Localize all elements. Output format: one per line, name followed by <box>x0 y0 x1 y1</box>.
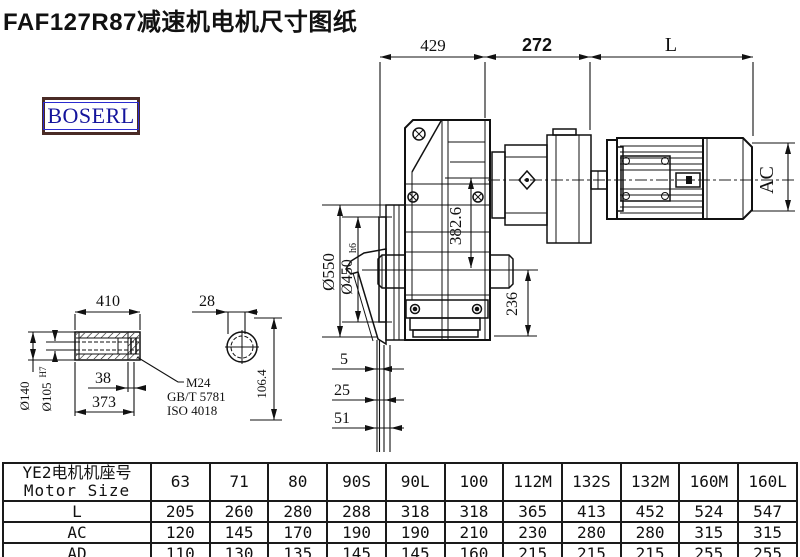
table-cell: 120 <box>151 522 210 543</box>
row-label: L <box>3 501 151 522</box>
table-cell: 210 <box>445 522 504 543</box>
table-cell: 315 <box>679 522 738 543</box>
dim-label-L: L <box>665 34 677 56</box>
table-col-header: 90L <box>386 463 445 501</box>
dim-label-106-4: 106.4 <box>254 369 269 399</box>
table-cell: 170 <box>268 522 327 543</box>
table-cell: 215 <box>621 543 680 557</box>
table-cell: 413 <box>562 501 621 522</box>
standard-label-iso: ISO 4018 <box>167 403 217 418</box>
table-cell: 547 <box>738 501 797 522</box>
dim-label-382-6: 382.6 <box>446 207 465 245</box>
table-col-header: 100 <box>445 463 504 501</box>
table-col-header: 112M <box>503 463 562 501</box>
row-label: AD <box>3 543 151 557</box>
table-cell: 205 <box>151 501 210 522</box>
table-row-AC: AC 120 145 170 190 190 210 230 280 280 3… <box>3 522 797 543</box>
table-col-header: 63 <box>151 463 210 501</box>
table-cell: 452 <box>621 501 680 522</box>
table-cell: 315 <box>738 522 797 543</box>
table-cell: 260 <box>210 501 269 522</box>
table-header-row: YE2电机机座号 Motor Size 63 71 80 90S 90L 100… <box>3 463 797 501</box>
table-col-header: 160L <box>738 463 797 501</box>
table-col-header: 90S <box>327 463 386 501</box>
dim-label-5: 5 <box>340 351 348 368</box>
table-cell: 135 <box>268 543 327 557</box>
fan-cover <box>703 138 752 219</box>
table-cell: 145 <box>386 543 445 557</box>
right-lug <box>490 255 513 288</box>
table-row-AD: AD 110 130 135 145 145 160 215 215 215 2… <box>3 543 797 557</box>
dim-label-dia450: Ø450 <box>339 259 356 295</box>
motor-bolt-icon <box>662 193 669 200</box>
table-col-header: 80 <box>268 463 327 501</box>
table-cell: 280 <box>268 501 327 522</box>
dim-label-272: 272 <box>522 35 552 55</box>
dim-label-410: 410 <box>96 293 120 310</box>
table-cell: 280 <box>621 522 680 543</box>
table-cell: 190 <box>327 522 386 543</box>
table-cell: 215 <box>562 543 621 557</box>
drawing-page: FAF127R87减速机电机尺寸图纸 BOSERL 42 <box>0 0 800 557</box>
table-cell: 365 <box>503 501 562 522</box>
table-cell: 318 <box>386 501 445 522</box>
table-cell: 255 <box>738 543 797 557</box>
table-col-header: 71 <box>210 463 269 501</box>
table-col-header: 132S <box>562 463 621 501</box>
table-col-header: 160M <box>679 463 738 501</box>
leader-line <box>137 357 184 382</box>
dim-label-51: 51 <box>334 410 350 427</box>
table-cell: 280 <box>562 522 621 543</box>
table-cell: 255 <box>679 543 738 557</box>
motor-bolt-icon <box>662 158 669 165</box>
table-row-L: L 205 260 280 288 318 318 365 413 452 52… <box>3 501 797 522</box>
table-cell: 318 <box>445 501 504 522</box>
dim-label-dia105-tolerance: H7 <box>38 366 48 377</box>
table-cell: 524 <box>679 501 738 522</box>
table-cell: 145 <box>210 522 269 543</box>
motor-assembly: AC <box>488 129 796 243</box>
table-cell: 145 <box>327 543 386 557</box>
dim-label-dia140: Ø140 <box>17 382 32 411</box>
table-cell: 110 <box>151 543 210 557</box>
dim-label-AC: AC <box>756 166 778 194</box>
table-header-motor-size: YE2电机机座号 Motor Size <box>3 463 151 501</box>
nameplate-mark <box>686 176 692 184</box>
flange-thickness-dims: 5 25 51 <box>332 340 404 452</box>
thread-spec-label: M24 <box>186 375 211 390</box>
dim-label-429: 429 <box>420 36 446 55</box>
dim-label-236: 236 <box>504 292 521 316</box>
dim-label-dia105: Ø105 <box>39 383 54 412</box>
dim-label-38: 38 <box>95 370 111 387</box>
dim-label-25: 25 <box>334 382 350 399</box>
motor-size-table: YE2电机机座号 Motor Size 63 71 80 90S 90L 100… <box>2 462 798 557</box>
table-cell: 160 <box>445 543 504 557</box>
dim-label-373: 373 <box>92 394 116 411</box>
table-header-en: Motor Size <box>4 482 150 500</box>
table-header-cn: YE2电机机座号 <box>4 464 150 482</box>
dim-label-dia450-tolerance: h6 <box>348 243 359 253</box>
table-col-header: 132M <box>621 463 680 501</box>
table-cell: 288 <box>327 501 386 522</box>
table-cell: 190 <box>386 522 445 543</box>
standard-label-gbt: GB/T 5781 <box>167 389 226 404</box>
table-cell: 215 <box>503 543 562 557</box>
dim-label-dia550: Ø550 <box>319 253 338 291</box>
table-cell: 130 <box>210 543 269 557</box>
table-cell: 230 <box>503 522 562 543</box>
dim-label-28: 28 <box>199 293 215 310</box>
technical-drawing: 429 272 L Ø550 Ø450 h6 382.6 236 <box>0 0 800 462</box>
row-label: AC <box>3 522 151 543</box>
